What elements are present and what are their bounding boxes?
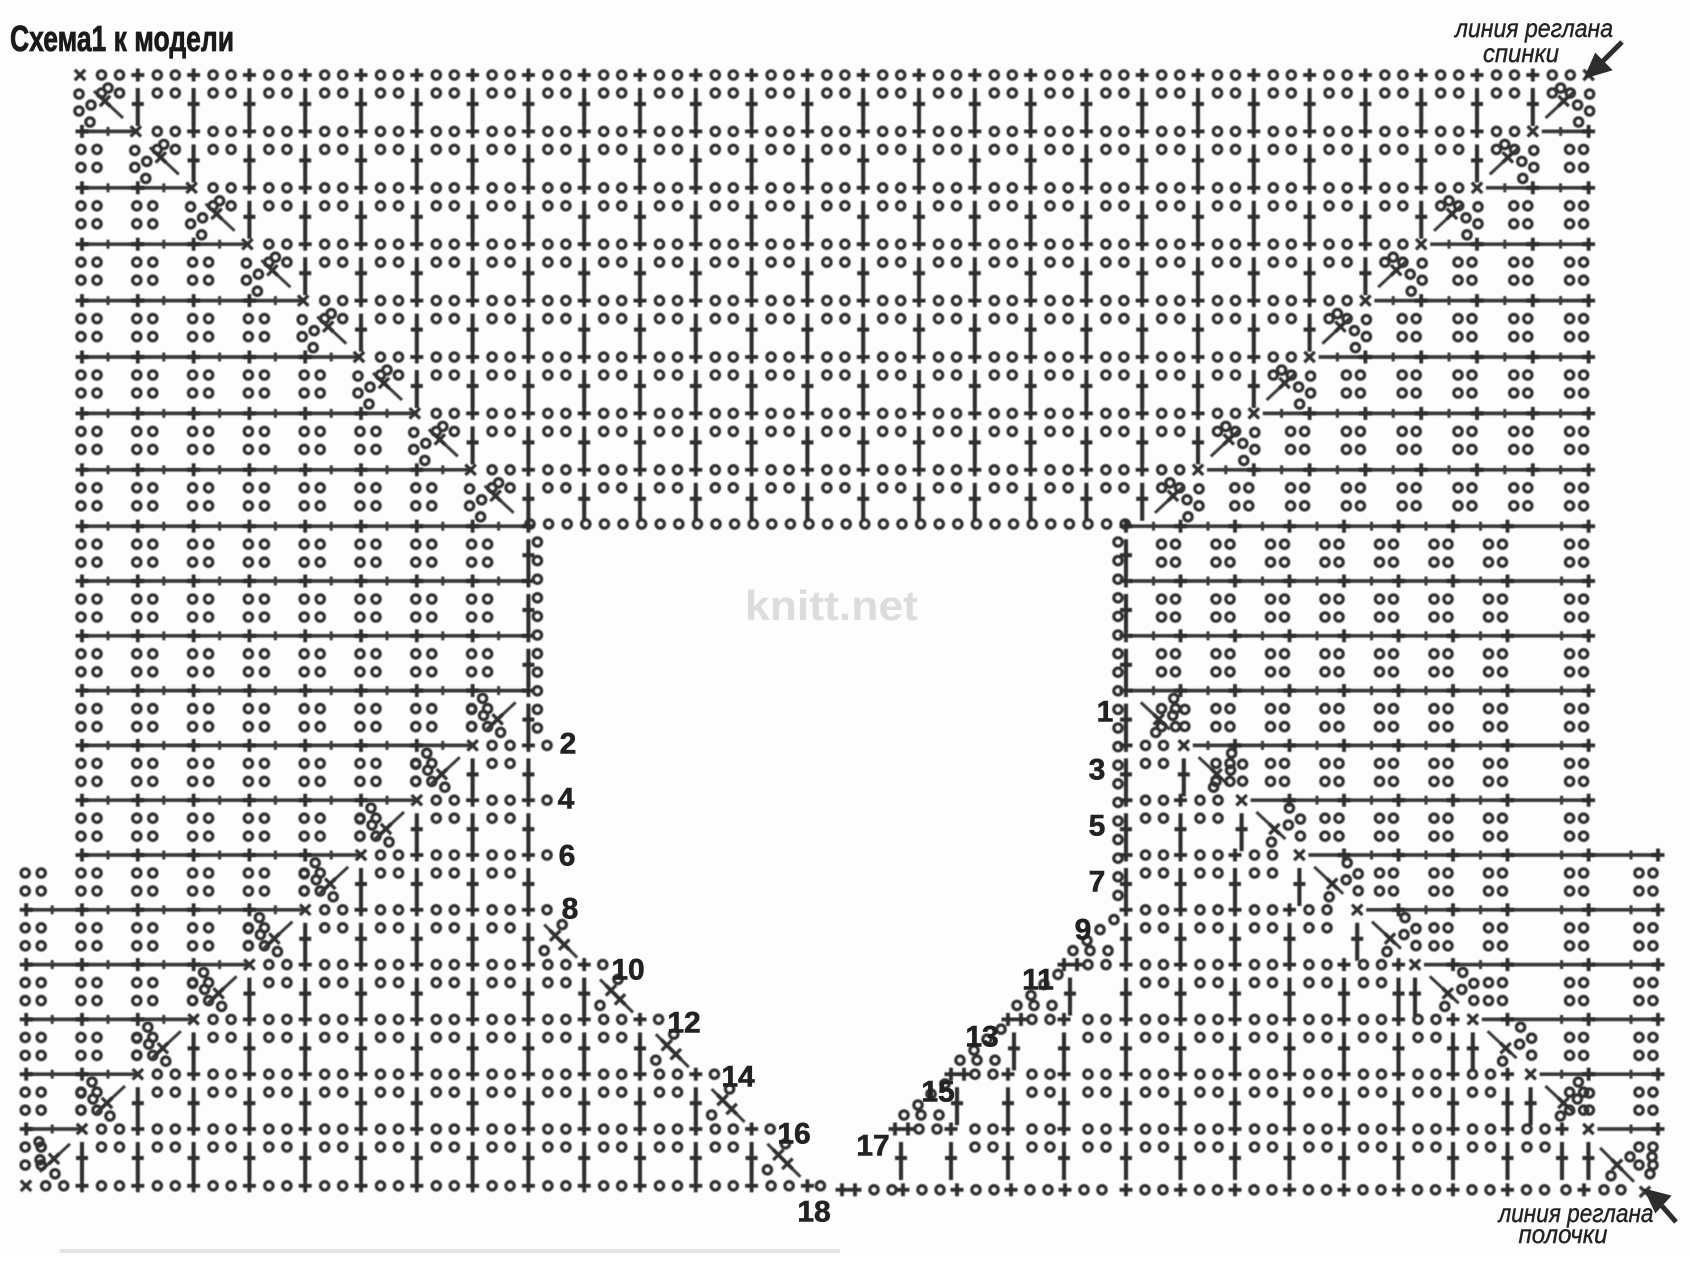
svg-text:12: 12 [667,1007,700,1040]
svg-text:спинки: спинки [1483,38,1559,68]
svg-text:4: 4 [558,783,575,816]
svg-text:полочки: полочки [1519,1219,1608,1249]
svg-text:15: 15 [921,1076,954,1109]
svg-text:7: 7 [1089,866,1106,899]
svg-text:16: 16 [777,1118,810,1151]
svg-text:1: 1 [1097,696,1114,729]
svg-text:17: 17 [856,1130,889,1163]
svg-text:14: 14 [721,1061,755,1094]
svg-text:knitt.net: knitt.net [745,582,918,629]
svg-text:11: 11 [1022,964,1054,997]
svg-text:6: 6 [559,840,576,873]
svg-text:2: 2 [560,728,577,761]
svg-text:Схема1 к модели: Схема1 к модели [10,18,234,59]
svg-text:3: 3 [1089,754,1106,787]
svg-text:9: 9 [1075,914,1092,947]
svg-text:13: 13 [965,1021,998,1054]
svg-text:10: 10 [611,954,644,987]
svg-text:8: 8 [562,893,579,926]
svg-text:18: 18 [797,1196,830,1229]
svg-text:5: 5 [1089,810,1106,843]
